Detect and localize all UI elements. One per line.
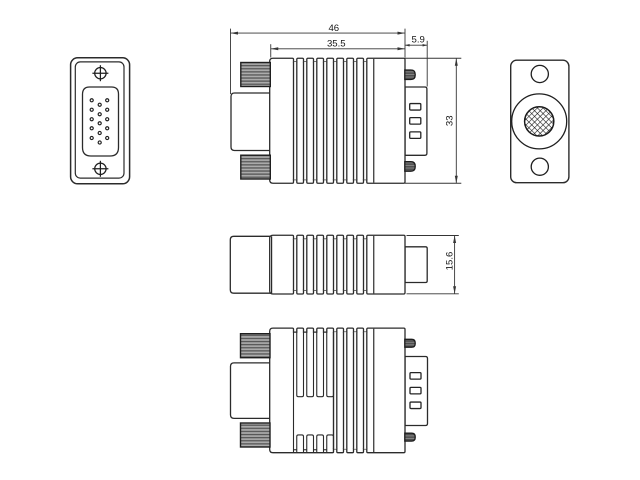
svg-text:46: 46 (328, 23, 339, 34)
svg-text:33: 33 (445, 115, 456, 126)
svg-text:35.5: 35.5 (327, 39, 346, 50)
svg-text:15.6: 15.6 (444, 252, 455, 271)
svg-text:5.9: 5.9 (412, 34, 425, 45)
